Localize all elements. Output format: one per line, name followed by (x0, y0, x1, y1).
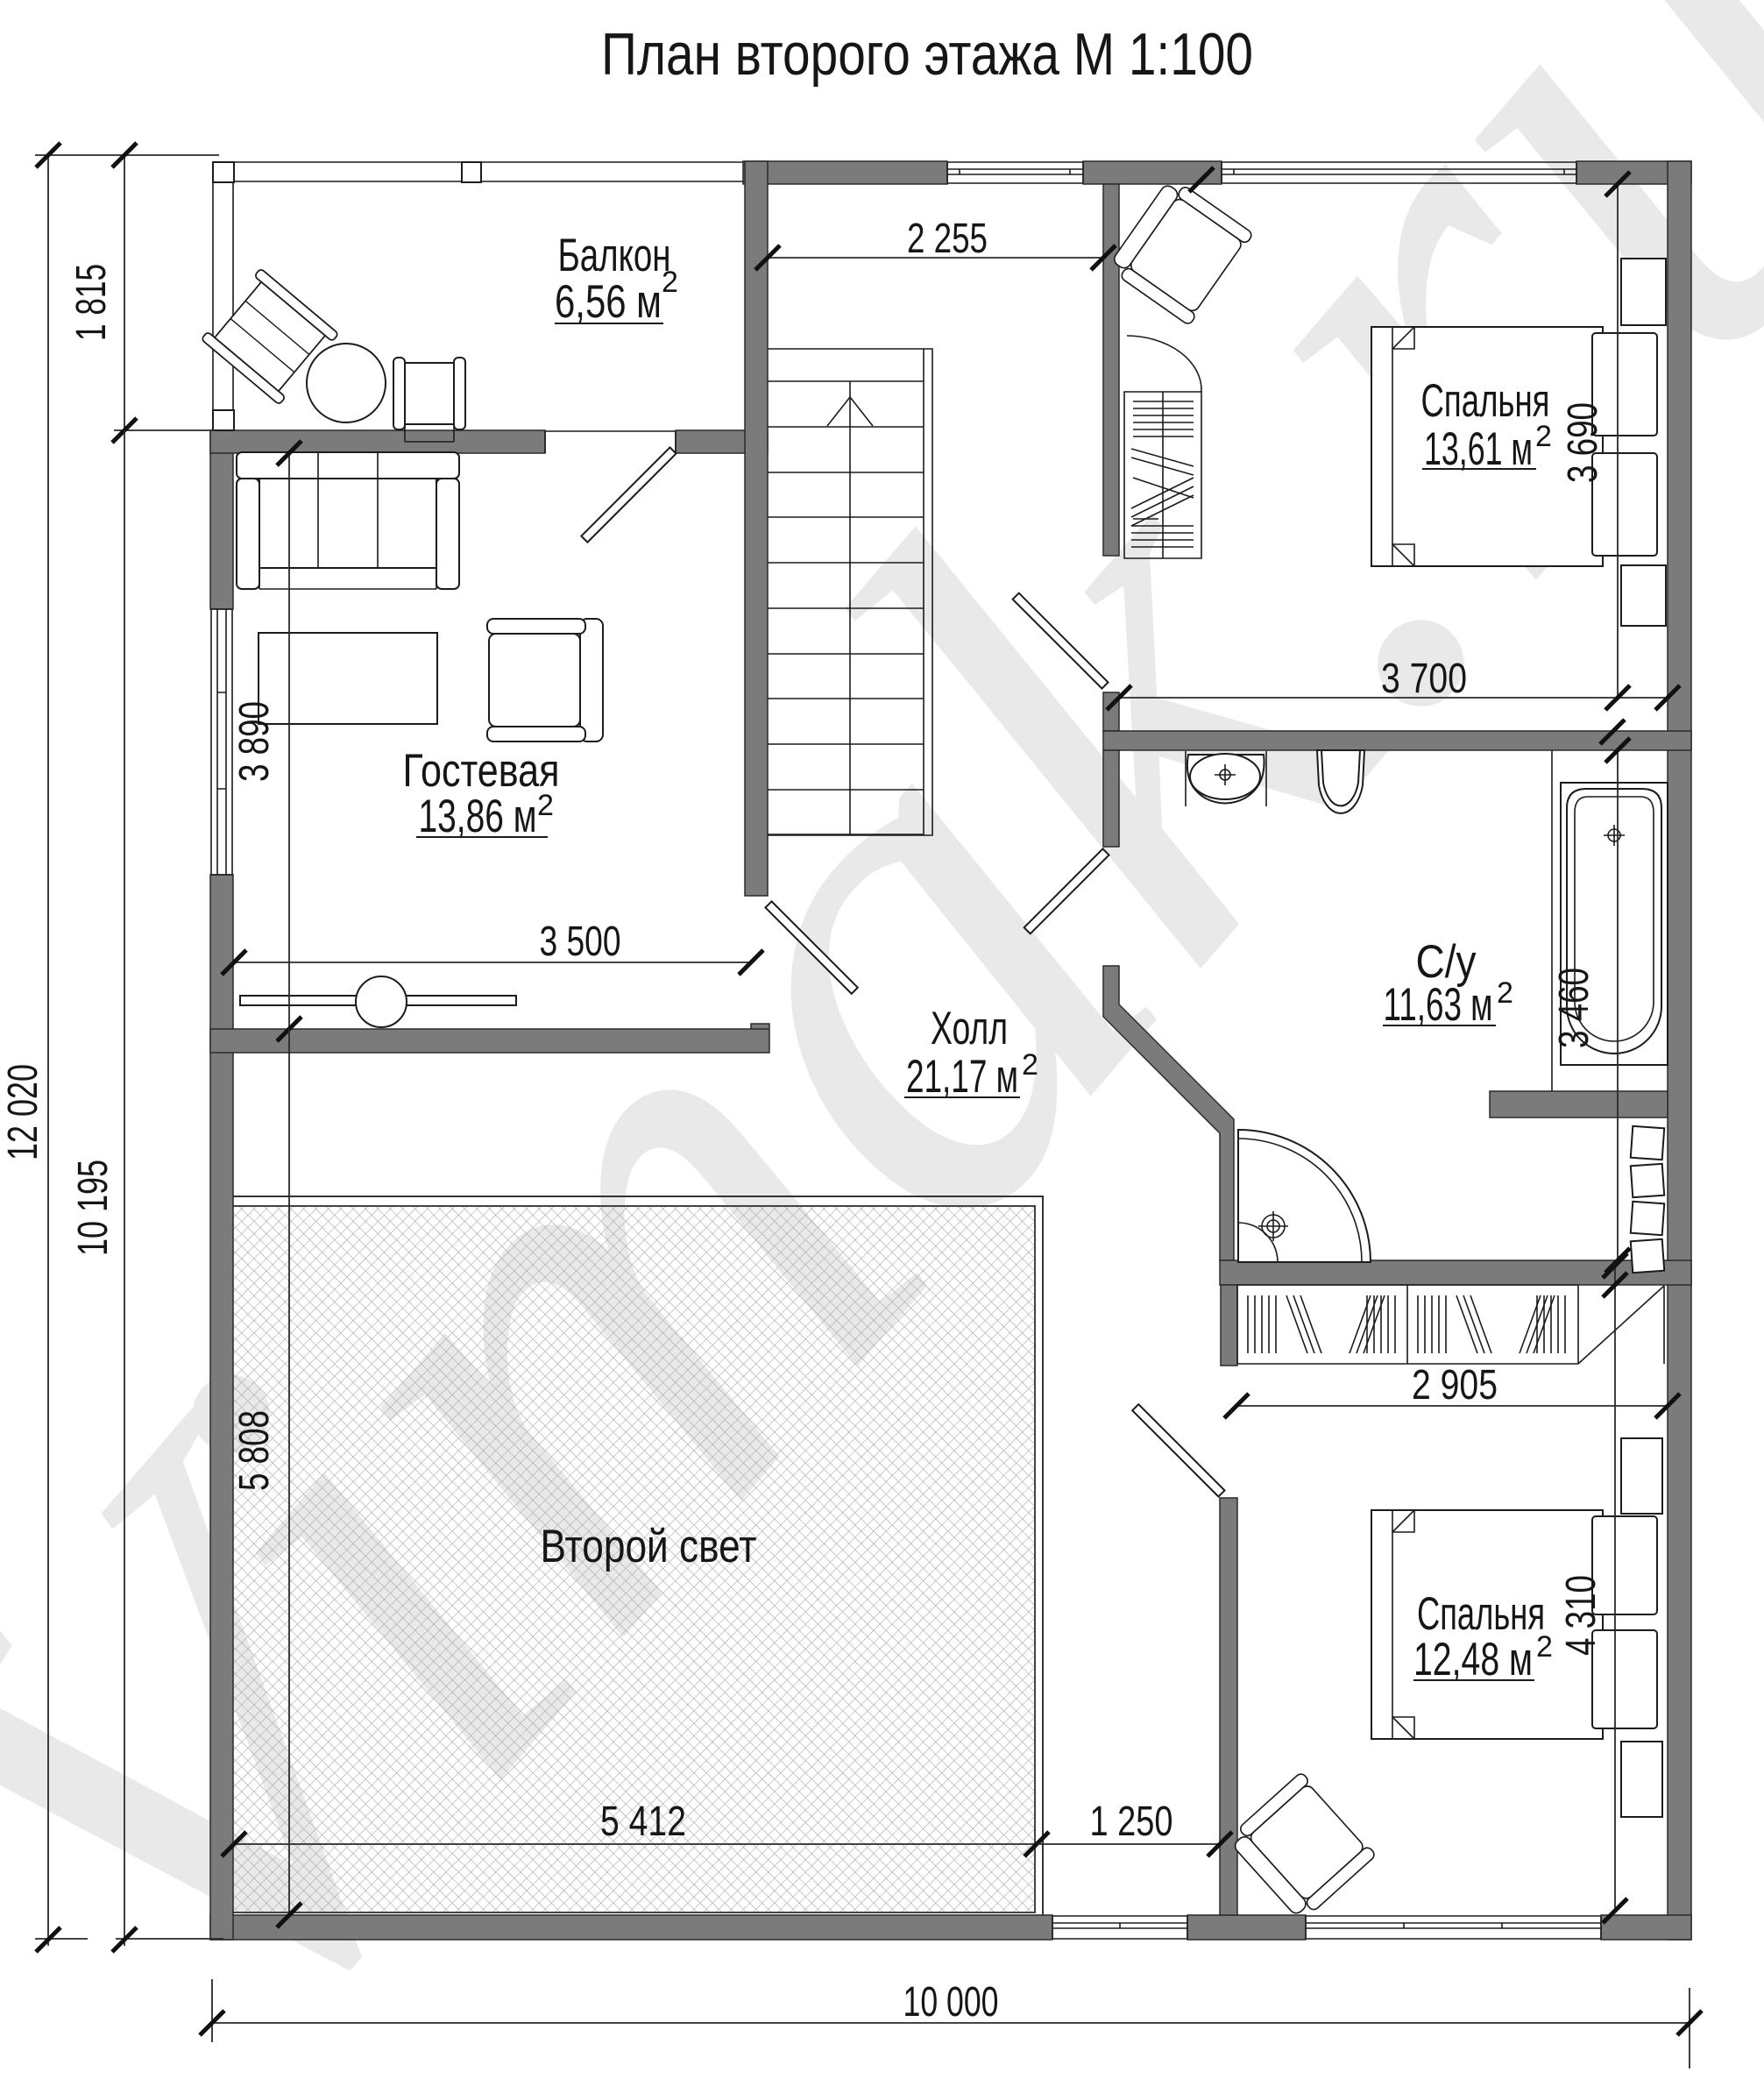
svg-text:2: 2 (1536, 1630, 1553, 1664)
svg-text:3 460: 3 460 (1551, 968, 1598, 1048)
svg-text:2: 2 (537, 789, 554, 822)
svg-text:12 020: 12 020 (0, 1064, 46, 1160)
svg-text:3 690: 3 690 (1560, 402, 1606, 483)
svg-text:13,86 м: 13,86 м (419, 791, 537, 842)
svg-text:5 412: 5 412 (600, 1799, 686, 1845)
svg-text:Спальня: Спальня (1421, 375, 1550, 427)
svg-text:4 310: 4 310 (1558, 1575, 1605, 1656)
svg-text:1 815: 1 815 (68, 264, 115, 341)
svg-text:Второй свет: Второй свет (541, 1521, 757, 1572)
svg-text:6,56 м: 6,56 м (555, 276, 662, 328)
svg-text:2: 2 (1535, 420, 1552, 453)
svg-text:3 700: 3 700 (1381, 656, 1467, 702)
svg-text:3 890: 3 890 (231, 701, 278, 782)
svg-text:1 250: 1 250 (1090, 1799, 1173, 1845)
svg-text:Холл: Холл (931, 1003, 1008, 1054)
svg-text:2 905: 2 905 (1412, 1362, 1498, 1408)
svg-text:Гостевая: Гостевая (403, 745, 560, 797)
svg-text:10 000: 10 000 (903, 1979, 999, 2026)
svg-text:2: 2 (662, 266, 678, 299)
svg-text:21,17 м: 21,17 м (906, 1051, 1018, 1103)
svg-text:2 255: 2 255 (907, 216, 988, 262)
svg-text:10 195: 10 195 (70, 1160, 117, 1256)
svg-text:Спальня: Спальня (1417, 1588, 1545, 1640)
svg-text:2: 2 (1022, 1048, 1038, 1082)
svg-text:13,61 м: 13,61 м (1424, 423, 1533, 475)
svg-text:12,48 м: 12,48 м (1413, 1634, 1533, 1685)
svg-text:Балкон: Балкон (558, 230, 671, 281)
svg-text:2: 2 (1497, 976, 1513, 1010)
svg-text:5 808: 5 808 (231, 1410, 278, 1491)
svg-text:3 500: 3 500 (540, 919, 621, 965)
svg-text:План второго этажа М 1:100: План второго этажа М 1:100 (601, 21, 1253, 88)
svg-text:11,63 м: 11,63 м (1384, 979, 1493, 1031)
